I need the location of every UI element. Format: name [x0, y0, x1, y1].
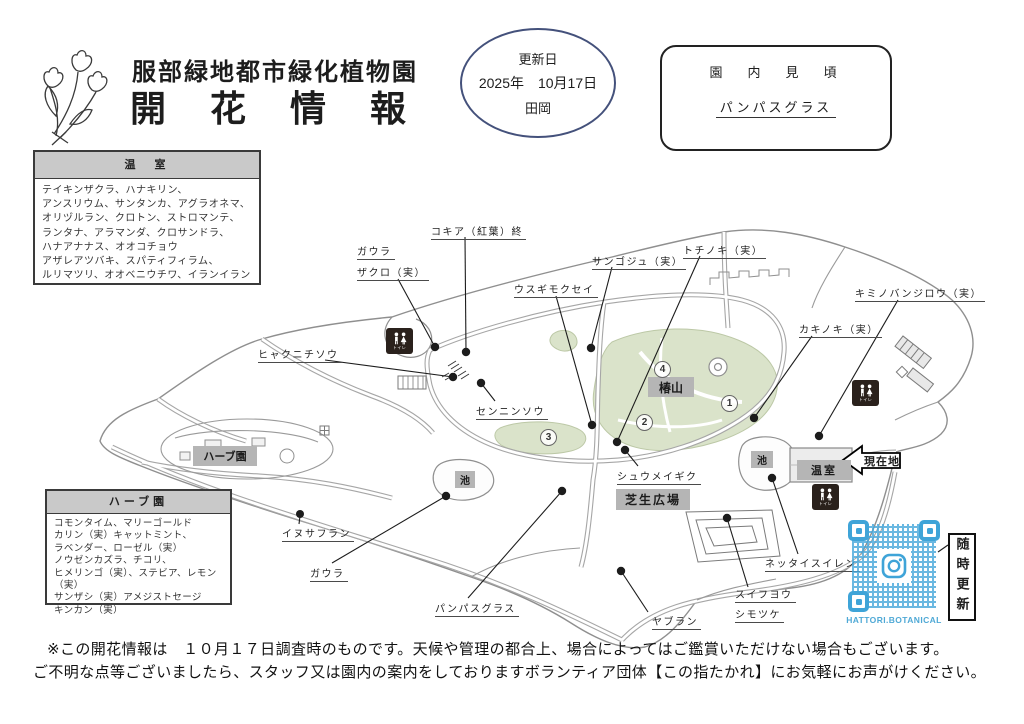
herb-line: ヒメリンゴ（実）、ステビア、レモン（実） — [54, 568, 223, 593]
greenhouse-plant-list: 温 室 テイキンザクラ、ハナキリン、 アンスリウム、サンタンカ、アグラオネマ、 … — [33, 150, 261, 285]
map-label-gaura-zakuro-2: ザクロ（実） — [357, 264, 429, 281]
map-label-pampasgrass: パンパスグラス — [435, 600, 519, 617]
always-updated-badge: 随時更新 — [948, 533, 976, 621]
area-label-herb-garden: ハーブ園 — [193, 446, 257, 466]
herb-line: キンカン（実） — [54, 605, 223, 617]
restroom-icon: トイレ — [852, 380, 879, 406]
map-label-kiminobanjirou: キミノバンジロウ（実） — [855, 285, 985, 302]
herb-line: ノウゼンカズラ、チコリ、 — [54, 555, 223, 567]
greenhouse-list-title: 温 室 — [35, 152, 259, 179]
area-label-pond-center: 池 — [455, 471, 475, 488]
herb-list-title: ハーブ園 — [47, 491, 230, 514]
herb-line: コモンタイム、マリーゴールド — [54, 518, 223, 530]
greenhouse-line: テイキンザクラ、ハナキリン、 — [42, 184, 252, 198]
herb-line: ラベンダー、ローゼル（実） — [54, 543, 223, 555]
area-label-tsubakiyama: 椿山 — [648, 377, 694, 397]
map-label-shuumeigiku: シュウメイギク — [617, 468, 701, 485]
restroom-icon: トイレ — [386, 328, 413, 354]
zone-number-3: 3 — [540, 429, 557, 446]
qr-finder-pattern — [848, 520, 869, 541]
restroom-icon: トイレ — [812, 484, 839, 510]
area-label-lawn-plaza: 芝生広場 — [616, 489, 690, 510]
map-label-suifuyou: スイフヨウ — [735, 586, 796, 603]
greenhouse-line: アンスリウム、サンタンカ、アグラオネマ、 — [42, 198, 252, 212]
instagram-qr-code — [848, 520, 940, 612]
greenhouse-line: ランタナ、アラマンダ、クロサンドラ、 — [42, 227, 252, 241]
map-label-usugimokusei: ウスギモクセイ — [514, 281, 598, 298]
greenhouse-line: アザレアツバキ、スパティフィラム、 — [42, 255, 252, 269]
restroom-icon-caption: トイレ — [819, 502, 833, 506]
map-label-inusafuran: イヌサフラン — [282, 525, 354, 542]
greenhouse-line: ハナアナナス、オオコチョウ — [42, 241, 252, 255]
instagram-icon — [881, 553, 907, 579]
qr-finder-pattern — [848, 591, 869, 612]
herb-line: カリン（実）キャットミント、 — [54, 530, 223, 542]
map-label-tochinoki: トチノキ（実） — [683, 242, 766, 259]
map-label-nettaisuiren: ネッタイスイレン — [765, 555, 860, 572]
restroom-icon-caption: トイレ — [393, 346, 407, 350]
footer-note-line2: ご不明な点等ございましたら、スタッフ又は園内の案内をしておりますボランティア団体… — [33, 662, 986, 685]
zone-number-2: 2 — [636, 414, 653, 431]
current-location-label: 現在地 — [864, 453, 900, 469]
footer-note-line1: ※この開花情報は １０月１７日調査時のものです。天候や管理の都合上、場合によって… — [33, 639, 986, 662]
herb-garden-plant-list: ハーブ園 コモンタイム、マリーゴールド カリン（実）キャットミント、 ラベンダー… — [45, 489, 232, 605]
map-label-senninsou: センニンソウ — [476, 403, 548, 420]
tulip-illustration — [26, 46, 131, 151]
map-label-kokia: コキア（紅葉）終 — [431, 223, 526, 240]
greenhouse-line: オリヅルラン、クロトン、ストロマンテ、 — [42, 212, 252, 226]
zone-number-1: 1 — [721, 395, 738, 412]
instagram-account-name: HATTORI.BOTANICAL — [846, 615, 942, 625]
map-label-yaburan: ヤブラン — [652, 613, 701, 630]
footer-notes: ※この開花情報は １０月１７日調査時のものです。天候や管理の都合上、場合によって… — [33, 639, 986, 684]
map-label-kakinoki: カキノキ（実） — [799, 321, 882, 338]
map-label-gaura-zakuro-1: ガウラ — [357, 243, 395, 260]
restroom-icon-caption: トイレ — [859, 398, 873, 402]
zone-number-4: 4 — [654, 361, 671, 378]
area-label-greenhouse: 温室 — [797, 460, 851, 480]
qr-finder-pattern — [919, 520, 940, 541]
map-label-shimotsuke: シモツケ — [735, 606, 784, 623]
map-label-hyakunichisou: ヒャクニチソウ — [258, 346, 342, 363]
map-label-sangoju: サンゴジュ（実） — [592, 253, 686, 270]
map-label-gaura-2: ガウラ — [310, 565, 348, 582]
herb-line: サンザシ（実）アメジストセージ — [54, 592, 223, 604]
area-label-pond-right: 池 — [751, 451, 773, 468]
greenhouse-line: ルリマツリ、オオベニウチワ、イランイラン — [42, 269, 252, 283]
